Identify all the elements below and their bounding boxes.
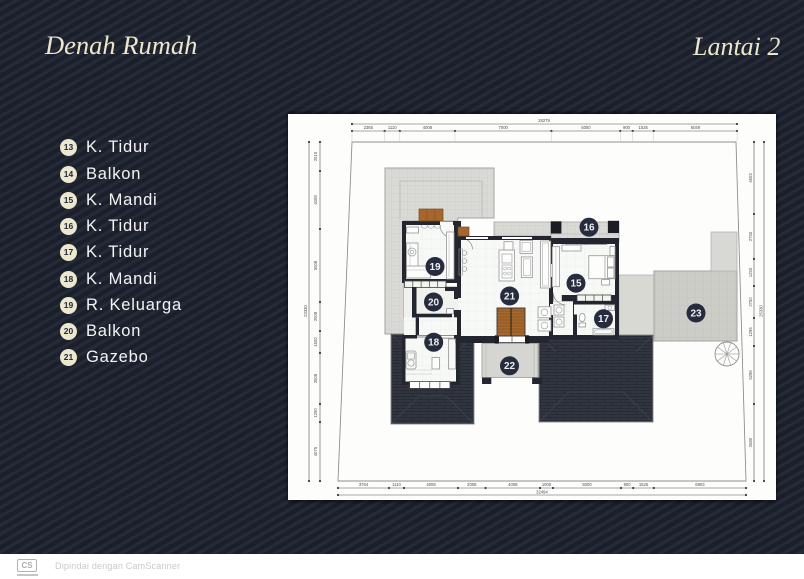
svg-text:5296: 5296 xyxy=(748,370,753,380)
svg-text:5008: 5008 xyxy=(313,260,318,270)
svg-text:4603: 4603 xyxy=(748,173,753,183)
svg-text:18: 18 xyxy=(428,338,440,349)
svg-text:1110: 1110 xyxy=(388,125,397,130)
svg-text:2008: 2008 xyxy=(313,311,318,321)
svg-text:20: 20 xyxy=(428,297,440,308)
svg-text:1000: 1000 xyxy=(542,482,552,487)
svg-text:17: 17 xyxy=(598,314,610,325)
svg-text:3508: 3508 xyxy=(313,373,318,383)
svg-text:1525: 1525 xyxy=(639,125,649,130)
svg-text:2015: 2015 xyxy=(313,151,318,161)
svg-text:5000: 5000 xyxy=(581,125,591,130)
svg-text:22: 22 xyxy=(504,361,516,372)
svg-text:1250: 1250 xyxy=(748,267,753,277)
svg-text:1500: 1500 xyxy=(313,337,318,347)
svg-text:4008: 4008 xyxy=(508,482,518,487)
svg-text:4008: 4008 xyxy=(423,125,433,130)
svg-text:1110: 1110 xyxy=(392,482,401,487)
svg-text:6049: 6049 xyxy=(691,125,701,130)
svg-text:19: 19 xyxy=(429,262,441,273)
svg-text:900: 900 xyxy=(623,125,631,130)
svg-text:4075: 4075 xyxy=(313,446,318,456)
svg-text:2008: 2008 xyxy=(467,482,477,487)
svg-text:21: 21 xyxy=(504,291,516,302)
svg-text:6803: 6803 xyxy=(695,482,705,487)
svg-text:23: 23 xyxy=(690,308,702,319)
svg-text:1250: 1250 xyxy=(313,408,318,418)
svg-text:1525: 1525 xyxy=(639,482,649,487)
svg-text:2750: 2750 xyxy=(748,231,753,241)
svg-text:3764: 3764 xyxy=(359,482,369,487)
svg-text:5000: 5000 xyxy=(582,482,592,487)
svg-text:32494: 32494 xyxy=(536,490,548,495)
svg-text:25330: 25330 xyxy=(759,305,764,317)
svg-text:900: 900 xyxy=(624,482,632,487)
svg-text:2680: 2680 xyxy=(748,437,753,447)
svg-text:16: 16 xyxy=(583,223,595,234)
svg-text:28279: 28279 xyxy=(538,118,550,123)
svg-text:15: 15 xyxy=(570,279,582,290)
svg-text:2365: 2365 xyxy=(364,125,374,130)
svg-text:4008: 4008 xyxy=(426,482,436,487)
svg-text:1296: 1296 xyxy=(748,327,753,337)
svg-text:4008: 4008 xyxy=(313,195,318,205)
svg-text:7000: 7000 xyxy=(499,125,509,130)
svg-text:2750: 2750 xyxy=(748,297,753,307)
svg-text:23330: 23330 xyxy=(303,305,308,317)
